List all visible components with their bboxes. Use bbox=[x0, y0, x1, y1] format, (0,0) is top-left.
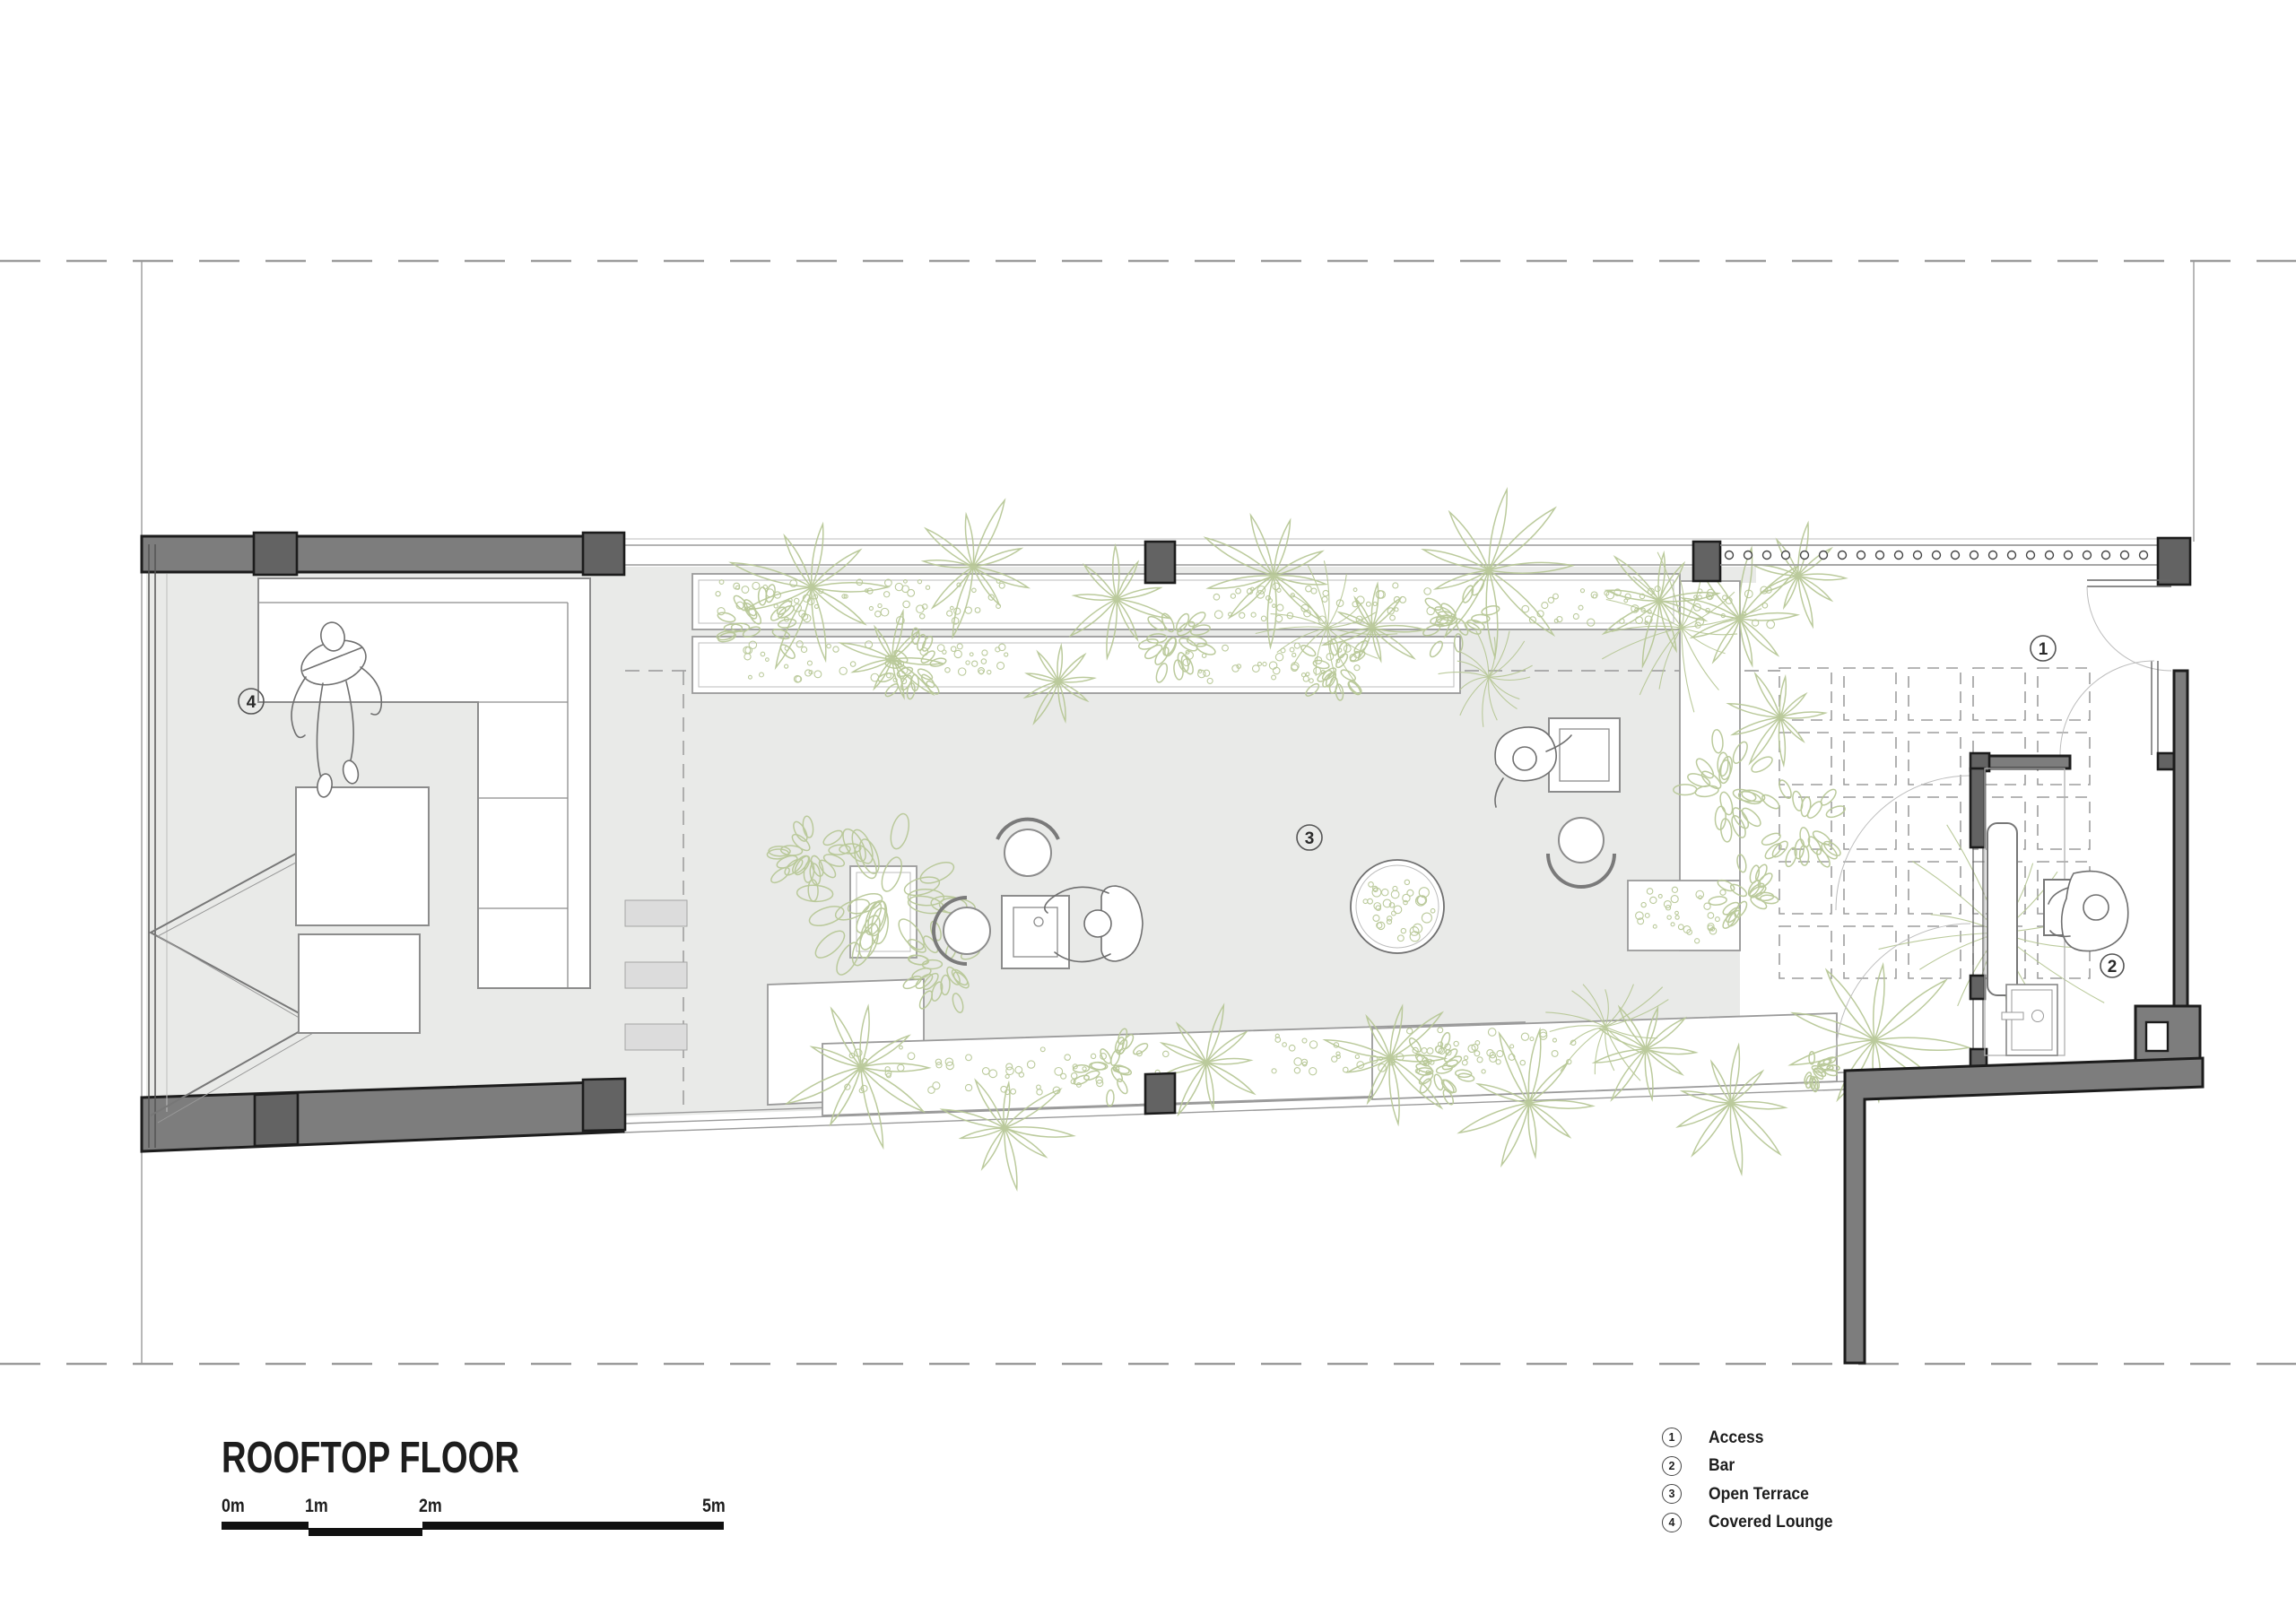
pergola-cell bbox=[1909, 797, 1961, 849]
column-void bbox=[2146, 1022, 2168, 1051]
door-swing-arc bbox=[1836, 776, 1970, 910]
pergola-cell bbox=[2038, 797, 2090, 849]
legend-number-badge: 3 bbox=[1662, 1484, 1682, 1504]
pergola-cell bbox=[1909, 668, 1961, 720]
pergola-cell bbox=[1844, 926, 1896, 978]
column bbox=[254, 533, 297, 575]
pergola-cell bbox=[2038, 668, 2090, 720]
pergola-cell bbox=[1844, 733, 1896, 785]
corner-column bbox=[2158, 538, 2190, 585]
lower-l-wall bbox=[1845, 1058, 2203, 1363]
faucet bbox=[2002, 1012, 2023, 1020]
scale-segment bbox=[222, 1522, 309, 1530]
pergola-cell bbox=[1844, 862, 1896, 914]
fence-post bbox=[2046, 551, 2054, 560]
legend-item-open-terrace: 3 Open Terrace bbox=[1662, 1484, 1847, 1504]
pergola-cell bbox=[1779, 862, 1831, 914]
column bbox=[1145, 542, 1175, 583]
legend-item-covered-lounge: 4 Covered Lounge bbox=[1662, 1513, 1847, 1532]
column bbox=[1693, 542, 1720, 581]
legend-item-access: 1 Access bbox=[1662, 1428, 1847, 1447]
column bbox=[583, 533, 624, 575]
dining-table bbox=[1002, 896, 1069, 968]
coffee-table bbox=[296, 787, 429, 925]
pergola-cell bbox=[1909, 926, 1961, 978]
pergola-cell bbox=[1779, 733, 1831, 785]
planter-top-b bbox=[692, 637, 1460, 693]
chair bbox=[1559, 818, 1604, 863]
legend-label: Open Terrace bbox=[1709, 1484, 1809, 1505]
floorplan-drawing: 1 2 3 4 bbox=[0, 0, 2296, 1623]
wall-segment bbox=[1970, 976, 1985, 999]
planter-round bbox=[1351, 860, 1444, 953]
entry-door bbox=[2087, 580, 2171, 671]
scale-segment bbox=[422, 1522, 724, 1530]
fence-post bbox=[1895, 551, 1903, 560]
title-block: ROOFTOP FLOOR bbox=[222, 1433, 604, 1483]
legend-number-badge: 2 bbox=[1662, 1456, 1682, 1476]
palm-plant bbox=[1728, 673, 1825, 765]
plan-label-bar: 2 bbox=[2100, 954, 2124, 977]
planter-right-foot bbox=[1628, 881, 1740, 950]
scale-tick-label: 1m bbox=[305, 1496, 328, 1517]
access-bar-area bbox=[1836, 580, 2203, 1363]
fence-post bbox=[1876, 551, 1884, 560]
drawing-sheet: 1 2 3 4 ROOFTOP FLOOR 0m 1m 2m 5m 1 Acce… bbox=[0, 0, 2296, 1623]
fence-post bbox=[1857, 551, 1865, 560]
fence-post bbox=[1989, 551, 1997, 560]
pergola-cell bbox=[1844, 668, 1896, 720]
legend-number-badge: 1 bbox=[1662, 1428, 1682, 1447]
legend-label: Bar bbox=[1709, 1455, 1735, 1476]
coffee-table bbox=[299, 934, 420, 1033]
scale-tick-label: 5m bbox=[702, 1496, 726, 1517]
fence-post bbox=[1763, 551, 1771, 560]
fence-post bbox=[2027, 551, 2035, 560]
wall-segment bbox=[1970, 768, 1985, 847]
interior-door bbox=[2060, 661, 2174, 769]
fence-post bbox=[2140, 551, 2148, 560]
planter-top-a bbox=[692, 574, 1680, 629]
sink bbox=[2002, 985, 2057, 1055]
fence-post bbox=[2008, 551, 2016, 560]
fence-post bbox=[1820, 551, 1828, 560]
svg-text:2: 2 bbox=[2108, 958, 2118, 976]
column bbox=[255, 1093, 298, 1146]
terrace-steps bbox=[625, 900, 687, 1050]
scale-segment bbox=[309, 1528, 422, 1536]
column bbox=[583, 1079, 625, 1131]
plan-label-access: 1 bbox=[2031, 636, 2056, 661]
fence-post bbox=[1914, 551, 1922, 560]
svg-text:1: 1 bbox=[2039, 640, 2048, 659]
leafy-plant bbox=[1760, 778, 1846, 869]
legend: 1 Access 2 Bar 3 Open Terrace 4 Covered … bbox=[1662, 1428, 1847, 1541]
fence-post bbox=[1744, 551, 1752, 560]
fence-post bbox=[1801, 551, 1809, 560]
scale-tick-label: 2m bbox=[419, 1496, 442, 1517]
pergola-cell bbox=[1909, 862, 1961, 914]
pergola-cell bbox=[1844, 797, 1896, 849]
fence-post bbox=[2083, 551, 2092, 560]
column bbox=[1145, 1073, 1175, 1114]
chair bbox=[1004, 829, 1051, 876]
pergola-cell bbox=[1973, 668, 2025, 720]
scale-bar: 0m 1m 2m 5m bbox=[222, 1496, 726, 1541]
svg-text:3: 3 bbox=[1305, 829, 1315, 848]
chair bbox=[944, 907, 990, 954]
right-wall bbox=[2174, 671, 2187, 1040]
legend-item-bar: 2 Bar bbox=[1662, 1456, 1847, 1476]
fence-post bbox=[1952, 551, 1960, 560]
pergola-cell bbox=[1779, 926, 1831, 978]
legend-label: Access bbox=[1709, 1428, 1763, 1448]
fence-with-posts bbox=[1720, 545, 2158, 565]
fence-post bbox=[2065, 551, 2073, 560]
svg-text:4: 4 bbox=[247, 693, 257, 712]
fence-post bbox=[1970, 551, 1979, 560]
fence-post bbox=[1839, 551, 1847, 560]
plan-title: ROOFTOP FLOOR bbox=[222, 1433, 519, 1483]
legend-label: Covered Lounge bbox=[1709, 1512, 1832, 1532]
legend-number-badge: 4 bbox=[1662, 1513, 1682, 1532]
fence-post bbox=[1933, 551, 1941, 560]
bar-counter bbox=[1987, 823, 2017, 995]
fence-post bbox=[2121, 551, 2129, 560]
fence-post bbox=[1782, 551, 1790, 560]
lounge-wall-top bbox=[142, 536, 623, 572]
fence-post bbox=[2102, 551, 2110, 560]
fence-post bbox=[1726, 551, 1734, 560]
scale-tick-label: 0m bbox=[222, 1496, 245, 1517]
wall-segment bbox=[1970, 1049, 1987, 1067]
